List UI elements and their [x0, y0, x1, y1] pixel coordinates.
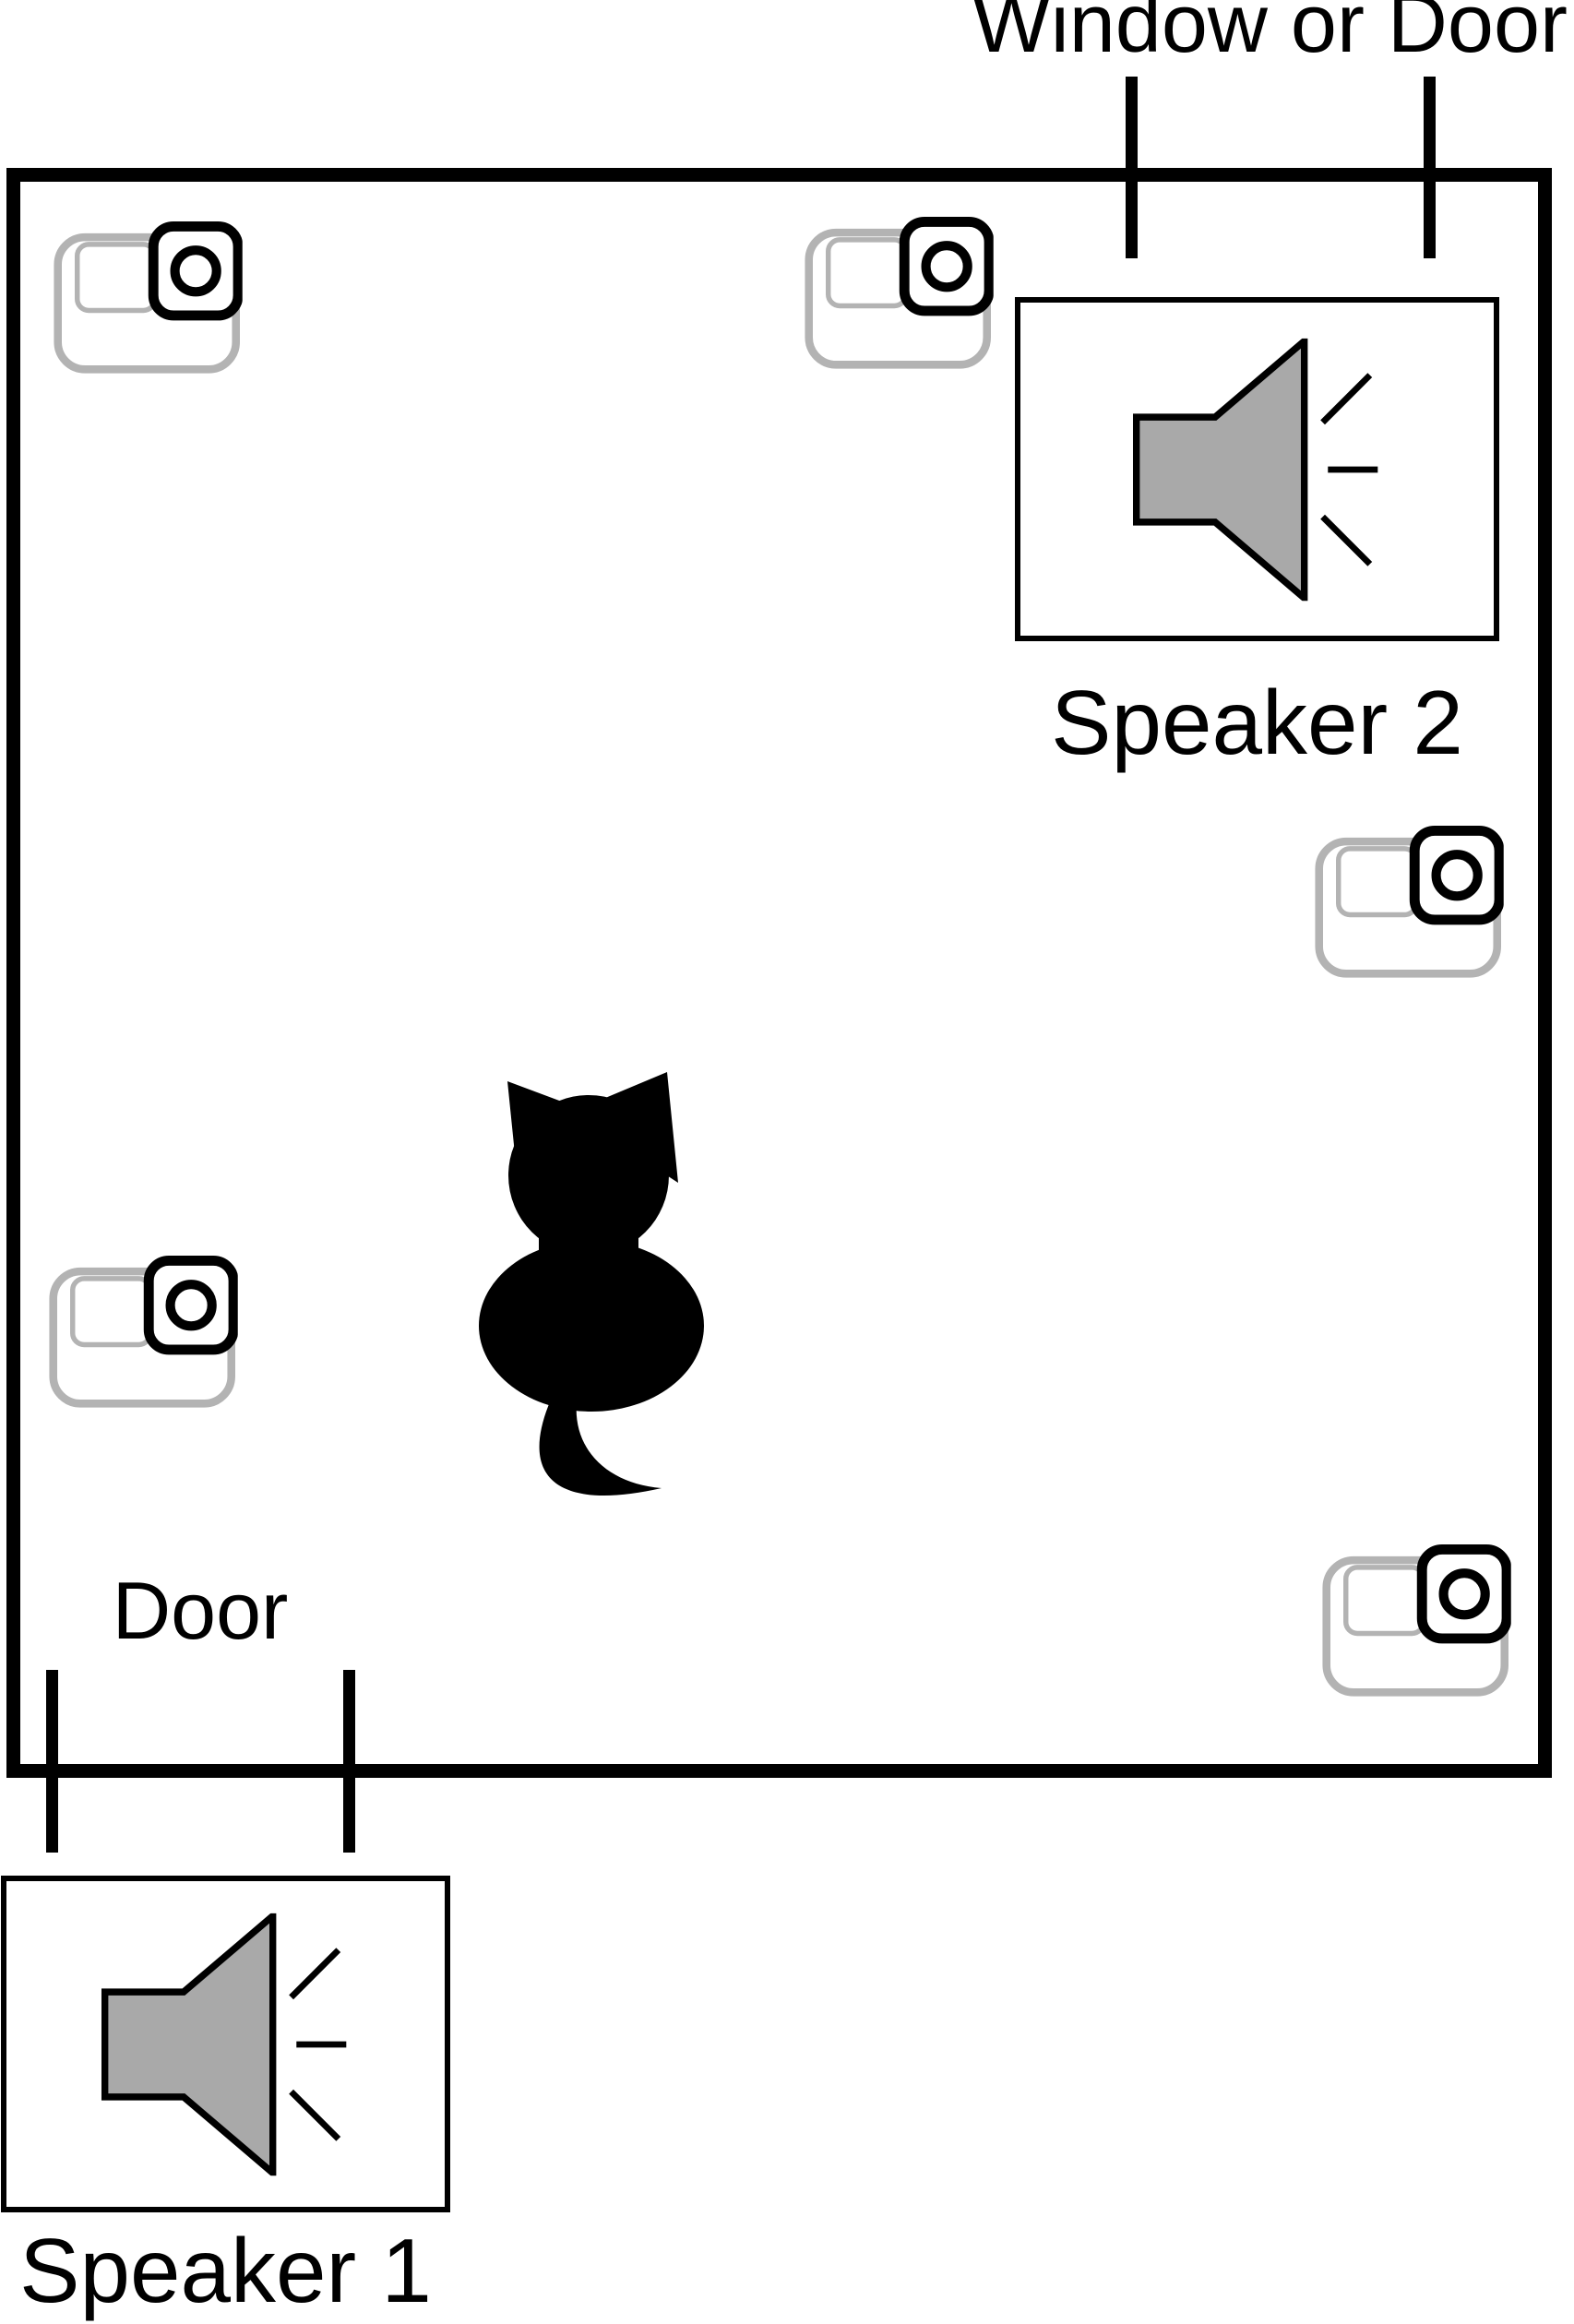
speaker-1-box [1, 1876, 450, 2212]
camera-icon [804, 217, 994, 369]
door-tick-left [46, 1670, 58, 1853]
camera-icon [48, 1256, 238, 1408]
camera-icon [1321, 1544, 1511, 1697]
cat-silhouette-icon [461, 1052, 729, 1504]
speaker-icon [100, 1911, 352, 2178]
speaker-2-box [1015, 297, 1499, 641]
door-label: Door [52, 1568, 349, 1653]
door-tick-right [343, 1670, 355, 1853]
window-or-door-label: Window or Door [972, 0, 1568, 68]
window-door-tick-right [1424, 77, 1436, 258]
room-diagram-canvas: Window or Door Speaker 2 Door Speaker 1 [0, 0, 1574, 2324]
speaker-1-label: Speaker 1 [1, 2223, 450, 2318]
speaker-2-label: Speaker 2 [1015, 675, 1499, 770]
camera-icon [53, 221, 243, 374]
camera-icon [1314, 826, 1504, 978]
window-door-tick-left [1126, 77, 1138, 258]
speaker-icon [1131, 336, 1383, 603]
